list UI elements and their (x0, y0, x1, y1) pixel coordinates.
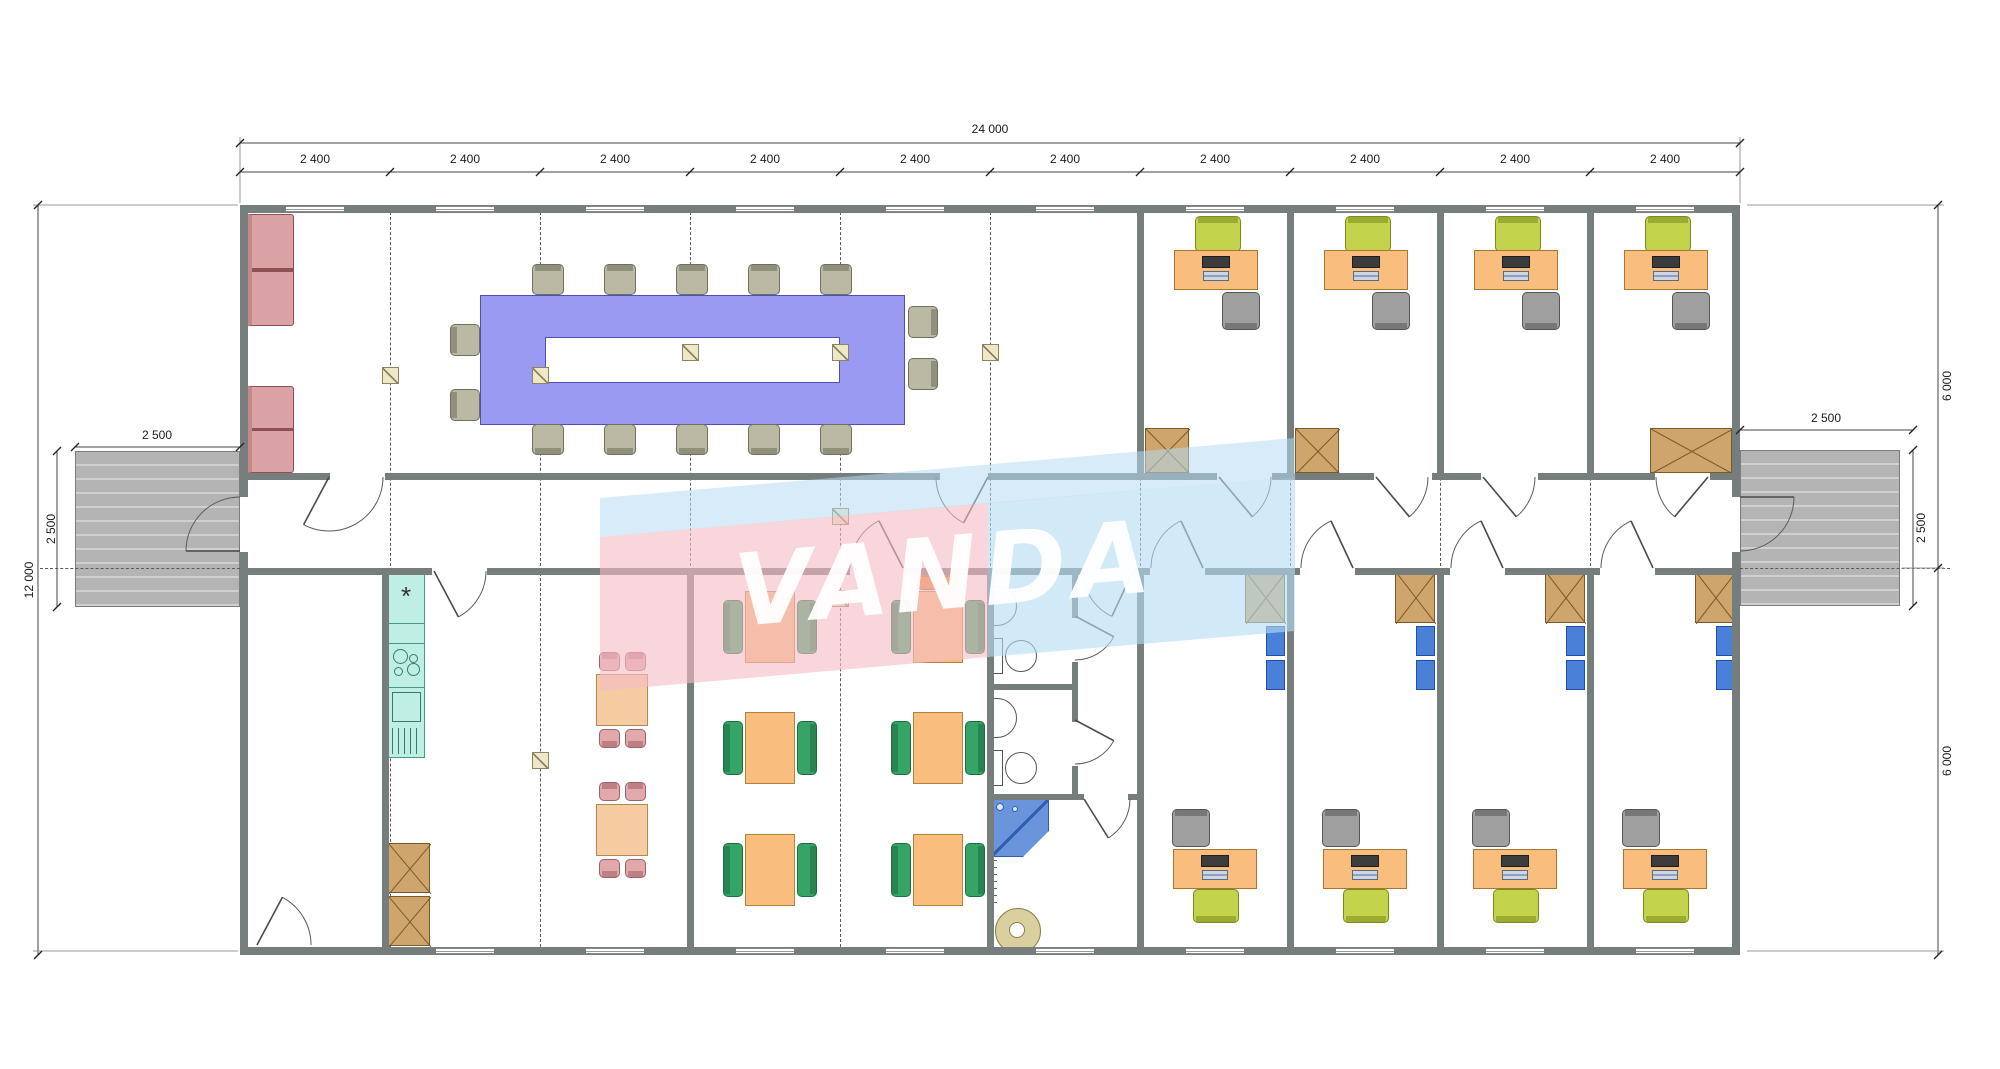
window (1486, 948, 1544, 954)
wall (987, 794, 1084, 800)
dimension-line (1934, 951, 1942, 959)
task-chair (1195, 216, 1241, 252)
chair-back (823, 448, 849, 454)
dimension-label: 2 400 (900, 152, 930, 166)
cabinet-icon (1395, 571, 1435, 623)
sofa (246, 214, 294, 326)
dining-chair (625, 729, 646, 748)
column-symbol (832, 344, 849, 361)
door (1075, 616, 1114, 660)
task-chair (1495, 216, 1541, 252)
dimension-label: 2 400 (1500, 152, 1530, 166)
canteen-chair (797, 721, 817, 775)
meeting-chair (748, 424, 780, 455)
wall (1437, 205, 1444, 480)
window (736, 206, 794, 212)
dining-chair (599, 859, 620, 878)
kitchen-divider (388, 687, 424, 688)
keyboard (1652, 870, 1678, 880)
chair-back (724, 846, 730, 894)
dimension-label: 6 000 (1940, 371, 1954, 401)
chair-back (451, 392, 457, 418)
wall (240, 552, 248, 955)
keyboard (1353, 271, 1379, 281)
canteen-chair (965, 721, 985, 775)
chair-back (607, 448, 633, 454)
chair-back (931, 361, 937, 387)
dimension-line (1436, 168, 1444, 176)
chair-back (1525, 323, 1557, 329)
wall (1505, 568, 1600, 575)
dimension-line (1909, 602, 1917, 610)
dimension-label: 12 000 (22, 562, 36, 599)
dining-chair (625, 782, 646, 801)
wall (1128, 794, 1142, 800)
dimension-line (1909, 446, 1917, 454)
cabinet-icon (1145, 428, 1189, 473)
chair-back (1496, 916, 1536, 922)
door (257, 897, 311, 945)
chair-back (628, 783, 643, 789)
column-symbol (682, 344, 699, 361)
dimension-label: 6 000 (1940, 746, 1954, 776)
dimension-line (53, 447, 61, 455)
wall (1137, 568, 1144, 948)
keyboard (1653, 271, 1679, 281)
dimension-label: 2 500 (1914, 513, 1928, 543)
chair-back (892, 724, 898, 772)
cabinet-icon (1545, 571, 1585, 623)
window (1186, 206, 1244, 212)
door (1084, 799, 1130, 838)
keyboard (1502, 870, 1528, 880)
meeting-chair (604, 264, 636, 295)
dimension-line (236, 168, 244, 176)
mid-axis-dashed-left (40, 568, 240, 569)
dimension-line (1909, 426, 1917, 434)
dimension-line (386, 168, 394, 176)
chair-back (602, 783, 617, 789)
dimension-line (1934, 201, 1942, 209)
chair-back (451, 327, 457, 353)
dimension-label: 2 400 (750, 152, 780, 166)
stove-burner (394, 667, 403, 676)
shelf (1266, 660, 1285, 690)
dimension-label: 2 400 (1350, 152, 1380, 166)
wall (1655, 568, 1732, 575)
fridge (392, 692, 421, 722)
task-chair (1193, 889, 1239, 923)
meeting-chair (820, 424, 852, 455)
dimension-label: 2 400 (450, 152, 480, 166)
dimension-line (1136, 168, 1144, 176)
office-chair (1372, 292, 1410, 330)
window (586, 206, 644, 212)
column-symbol (532, 752, 549, 769)
meeting-chair (748, 264, 780, 295)
chair-back (607, 265, 633, 271)
kitchen-unit: * (387, 572, 425, 758)
chair-back (602, 653, 617, 659)
chair-back (931, 309, 937, 335)
chair-back (1498, 217, 1538, 223)
canteen-table (745, 834, 795, 906)
toilet-bowl (1005, 640, 1037, 672)
kitchen-divider (388, 643, 424, 644)
chair-back (724, 603, 730, 651)
canteen-table (745, 712, 795, 784)
wall (1732, 205, 1740, 497)
chair-back (1346, 916, 1386, 922)
column-symbol (832, 508, 849, 525)
chair-back (1196, 916, 1236, 922)
dining-table (596, 674, 648, 726)
door (1376, 477, 1428, 517)
chair-back (823, 265, 849, 271)
chair-back (628, 653, 643, 659)
window (436, 206, 494, 212)
dimension-line (1286, 168, 1294, 176)
dimension-label: 24 000 (972, 122, 1009, 136)
chair-back (679, 448, 705, 454)
window (286, 206, 344, 212)
dimension-line (536, 168, 544, 176)
wall (1732, 552, 1740, 955)
meeting-chair (450, 389, 480, 421)
dimension-label: 2 400 (300, 152, 330, 166)
task-chair (1345, 216, 1391, 252)
door (1451, 521, 1503, 568)
door (1656, 477, 1708, 517)
wall (1710, 473, 1732, 480)
canteen-chair (965, 843, 985, 897)
chair-back (1675, 323, 1707, 329)
window (886, 948, 944, 954)
window (1336, 948, 1394, 954)
chair-back (1375, 323, 1407, 329)
task-chair (1643, 889, 1689, 923)
wall (1137, 205, 1144, 480)
dimension-line (34, 951, 42, 959)
stove-burner (409, 654, 418, 663)
sink (991, 698, 1017, 738)
shower-faucet (996, 803, 1004, 811)
task-chair (1343, 889, 1389, 923)
desktop-computer (1501, 855, 1529, 867)
dimension-line (53, 603, 61, 611)
chair-back (978, 724, 984, 772)
wall (1287, 205, 1294, 480)
meeting-chair (676, 264, 708, 295)
desktop-computer (1351, 855, 1379, 867)
window (586, 948, 644, 954)
task-chair (1493, 889, 1539, 923)
column-symbol (982, 344, 999, 361)
dimension-line (686, 168, 694, 176)
canteen-table (913, 834, 963, 906)
dimension-label: 2 400 (1650, 152, 1680, 166)
keyboard (1352, 870, 1378, 880)
wall (1287, 568, 1294, 948)
door (1219, 477, 1271, 517)
chair-back (628, 741, 643, 747)
task-chair (1645, 216, 1691, 252)
dimension-line (836, 168, 844, 176)
dimension-line (1736, 139, 1744, 147)
door (1301, 521, 1353, 568)
desktop-computer (1502, 256, 1530, 268)
dimension-label: 2 500 (44, 514, 58, 544)
dining-table (596, 804, 648, 856)
chair-back (602, 871, 617, 877)
meeting-chair (676, 424, 708, 455)
porch-left (75, 451, 240, 607)
dining-chair (625, 652, 646, 671)
window (1036, 206, 1094, 212)
chair-back (1646, 916, 1686, 922)
shelf (1416, 626, 1435, 656)
shelf (1416, 660, 1435, 690)
office-chair (1622, 809, 1660, 847)
window (1036, 948, 1094, 954)
shelf (1566, 660, 1585, 690)
chair-back (1625, 810, 1657, 816)
wall (248, 568, 432, 575)
dimension-line (236, 139, 244, 147)
dimension-label: 2 500 (1811, 411, 1841, 425)
window (1636, 206, 1694, 212)
wall (1587, 568, 1594, 948)
keyboard (1503, 271, 1529, 281)
keyboard (1202, 870, 1228, 880)
meeting-chair (604, 424, 636, 455)
dimension-line (1586, 168, 1594, 176)
cabinet-icon (388, 843, 430, 893)
desktop-computer (1352, 256, 1380, 268)
wall (1355, 568, 1450, 575)
wall (1437, 568, 1444, 948)
wall (988, 473, 1217, 480)
water-heater-cap (1009, 922, 1025, 938)
wall (382, 568, 389, 948)
chair-back (1175, 810, 1207, 816)
window (736, 948, 794, 954)
shelf (1266, 626, 1285, 656)
stove-burner (407, 663, 420, 676)
desktop-computer (1201, 855, 1229, 867)
chair-back (628, 871, 643, 877)
chair-back (892, 846, 898, 894)
wall (1205, 568, 1300, 575)
wall (385, 473, 940, 480)
kitchen-divider (388, 623, 424, 624)
canteen-chair (891, 721, 911, 775)
dining-chair (599, 652, 620, 671)
chair-back (1475, 810, 1507, 816)
door (1483, 477, 1535, 517)
window (436, 948, 494, 954)
dining-chair (599, 782, 620, 801)
vanda-watermark-text: VANDA (730, 498, 1160, 650)
door (304, 477, 383, 531)
door (1601, 521, 1653, 568)
porch-right (1740, 450, 1900, 606)
office-chair (1222, 292, 1260, 330)
cabinet-icon (1650, 428, 1732, 473)
wall (1587, 205, 1594, 480)
desktop-computer (1202, 256, 1230, 268)
column-symbol (532, 367, 549, 384)
dimension-line (986, 168, 994, 176)
chair-back (810, 846, 816, 894)
dimension-label: 2 400 (1200, 152, 1230, 166)
window (1636, 948, 1694, 954)
window (1336, 206, 1394, 212)
dimension-label: 2 400 (600, 152, 630, 166)
dimension-line (34, 201, 42, 209)
meeting-chair (532, 424, 564, 455)
cabinet-icon (1695, 571, 1735, 623)
wall (1072, 766, 1078, 797)
chair-back (810, 724, 816, 772)
chair-back (724, 724, 730, 772)
office-chair (1472, 809, 1510, 847)
chair-back (1225, 323, 1257, 329)
dimension-label: 2 500 (142, 428, 172, 442)
keyboard (1203, 271, 1229, 281)
wall (1072, 662, 1078, 722)
meeting-chair (908, 358, 938, 390)
desktop-computer (1651, 855, 1679, 867)
meeting-chair (450, 324, 480, 356)
office-chair (1672, 292, 1710, 330)
chair-back (679, 265, 705, 271)
window (1186, 948, 1244, 954)
dimension-line (1736, 168, 1744, 176)
meeting-chair (820, 264, 852, 295)
dining-chair (625, 859, 646, 878)
cabinet-icon (388, 896, 430, 946)
chair-back (535, 265, 561, 271)
fridge-vents (392, 728, 421, 754)
chair-back (751, 448, 777, 454)
cabinet-icon (1245, 571, 1285, 623)
dining-chair (599, 729, 620, 748)
chair-back (1348, 217, 1388, 223)
chair-back (535, 448, 561, 454)
office-chair (1522, 292, 1560, 330)
door (1151, 521, 1203, 568)
office-chair (1172, 809, 1210, 847)
canteen-chair (723, 721, 743, 775)
wall (248, 473, 330, 480)
meeting-chair (908, 306, 938, 338)
dimension-label: 2 400 (1050, 152, 1080, 166)
cooker-hood-symbol: * (388, 581, 424, 612)
canteen-chair (891, 843, 911, 897)
office-chair (1322, 809, 1360, 847)
shower-faucet (1012, 806, 1018, 812)
chair-back (1648, 217, 1688, 223)
column-symbol (382, 367, 399, 384)
mid-axis-dashed-right (1740, 568, 1950, 569)
shelf (1566, 626, 1585, 656)
canteen-table (913, 712, 963, 784)
meeting-chair (532, 264, 564, 295)
floor-plan: VANDA *24 0002 4002 4002 4002 4002 4002 … (0, 0, 2000, 1069)
door (434, 571, 486, 617)
cabinet-icon (1295, 428, 1339, 473)
canteen-chair (723, 843, 743, 897)
desktop-computer (1652, 256, 1680, 268)
wall (987, 684, 1078, 690)
door (1075, 720, 1114, 764)
wall (1538, 473, 1655, 480)
chair-back (1325, 810, 1357, 816)
wall (687, 568, 694, 948)
window (886, 206, 944, 212)
toilet-bowl (1005, 752, 1037, 784)
dimension-line (71, 443, 79, 451)
chair-back (751, 265, 777, 271)
wall (240, 205, 248, 497)
stove-burner (393, 649, 408, 664)
chair-back (978, 846, 984, 894)
chair-back (602, 741, 617, 747)
window (1486, 206, 1544, 212)
chair-back (1198, 217, 1238, 223)
sofa (246, 386, 294, 473)
canteen-chair (797, 843, 817, 897)
